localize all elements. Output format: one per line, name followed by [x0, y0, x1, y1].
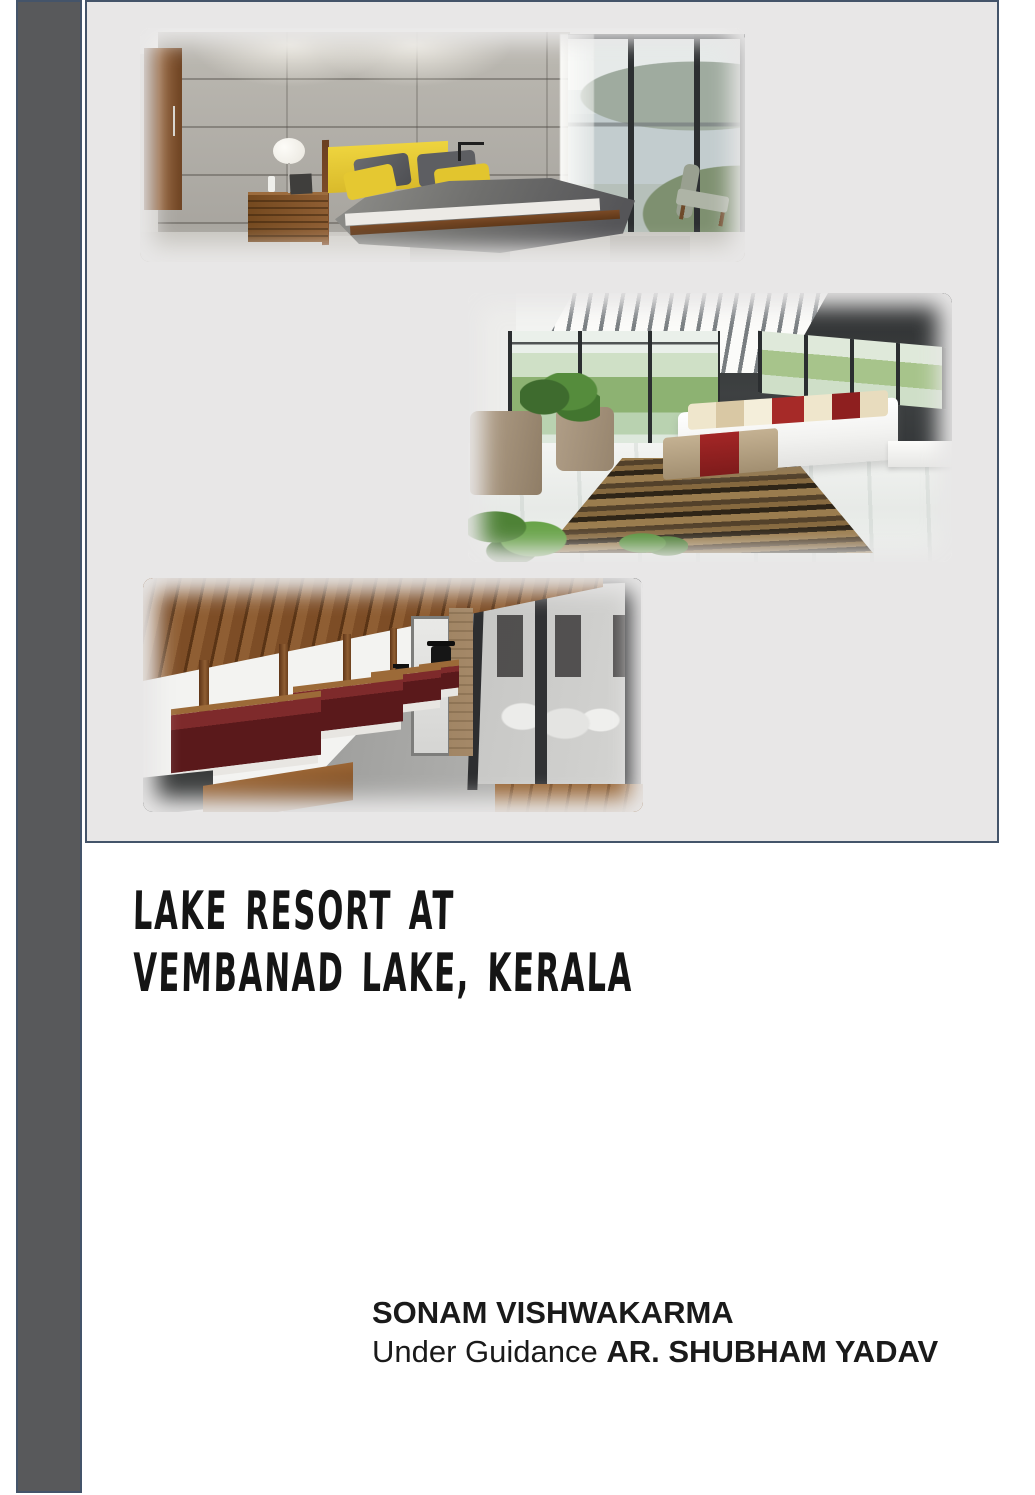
guidance-line: Under Guidance AR. SHUBHAM YADAV — [372, 1332, 938, 1371]
p2-feathered-edge — [468, 293, 952, 562]
p1-feathered-edge — [140, 28, 745, 262]
project-title: LAKE RESORT AT VEMBANAD LAKE, KERALA — [133, 881, 996, 1005]
credits-block: SONAM VISHWAKARMA Under Guidance AR. SHU… — [372, 1293, 938, 1371]
guidance-prefix: Under Guidance — [372, 1334, 606, 1369]
render-bedroom-lake-view — [468, 293, 952, 562]
render-veranda-restaurant — [143, 578, 643, 812]
image-collage-panel — [85, 0, 999, 843]
author-name: SONAM VISHWAKARMA — [372, 1293, 938, 1332]
guide-name: AR. SHUBHAM YADAV — [606, 1334, 938, 1369]
p3-feathered-edge — [143, 578, 643, 812]
render-bedroom-concrete-wall — [140, 28, 745, 262]
report-cover-page: LAKE RESORT AT VEMBANAD LAKE, KERALA SON… — [0, 0, 1035, 1495]
title-line-2: VEMBANAD LAKE, KERALA — [132, 943, 634, 1005]
left-accent-bar — [16, 0, 82, 1493]
title-line-1: LAKE RESORT AT — [132, 881, 634, 943]
